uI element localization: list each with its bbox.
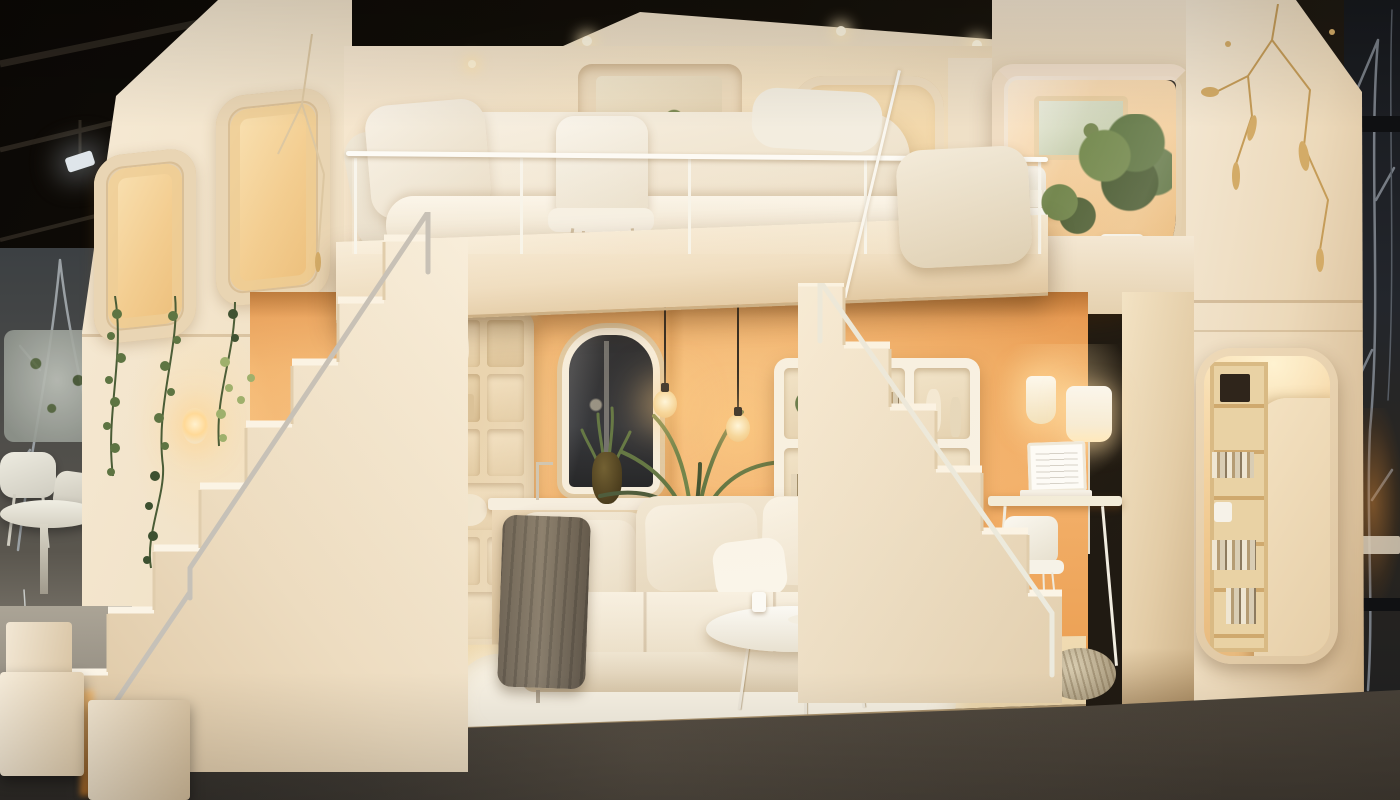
pendant-bulb [653, 390, 677, 418]
pendant-cord [737, 300, 739, 416]
bed-pillow [751, 87, 884, 154]
faucet [536, 462, 539, 500]
recessed-light [582, 36, 592, 46]
book-row [1212, 540, 1256, 570]
faucet-spout [536, 462, 553, 465]
pendant-bulb [726, 414, 750, 442]
railing-post [688, 158, 691, 254]
step-block [88, 700, 190, 800]
railing-post [1038, 158, 1041, 254]
right-staircase [790, 283, 1062, 703]
pendant-cord [664, 300, 666, 392]
railing-post [520, 158, 523, 254]
bedroom-lamp-glow [468, 60, 476, 68]
step-block [0, 672, 84, 776]
coffee-cup [752, 592, 766, 612]
left-staircase [32, 212, 468, 772]
sofa-leg [536, 690, 540, 703]
step-block [6, 622, 72, 678]
draped-blanket [895, 145, 1033, 270]
throw-blanket [497, 515, 591, 690]
showroom-scene: Cutaway two-story modular tiny-home disp… [0, 0, 1400, 800]
kintsugi-seams [1192, 4, 1362, 304]
shelf-vessel [1214, 502, 1232, 522]
book-row [1212, 452, 1254, 478]
recessed-light [836, 26, 846, 36]
book-row [1226, 588, 1256, 624]
book-stack [1220, 374, 1250, 402]
floor-lamp-shade [1066, 386, 1112, 442]
